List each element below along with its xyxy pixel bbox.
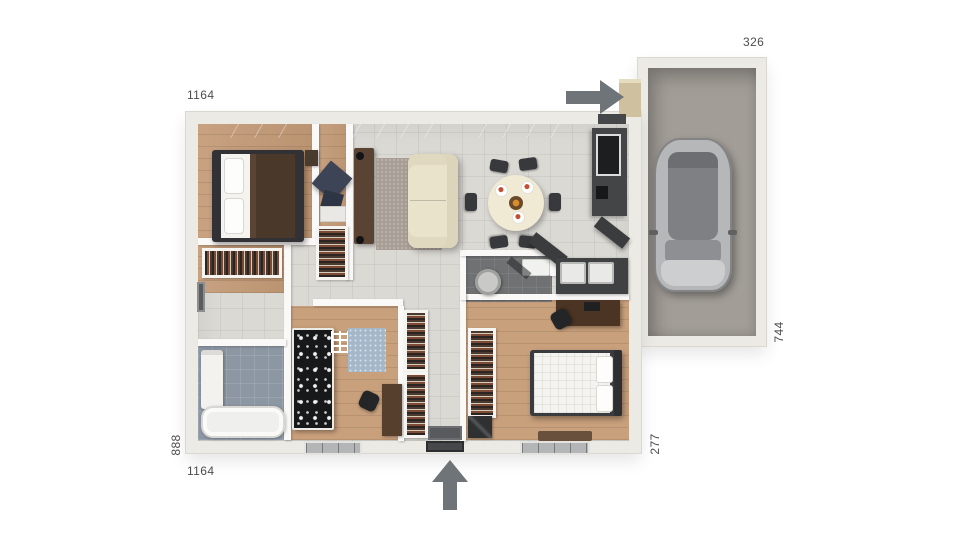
wall-bathroom-top	[198, 339, 286, 346]
dining-chair-6	[465, 193, 477, 211]
entry-mat	[428, 426, 462, 440]
bathtub	[201, 406, 285, 438]
dimension-right-wing: 277	[648, 430, 662, 458]
bed1-blanket	[250, 154, 295, 238]
bed1-pillow-top	[224, 158, 244, 194]
wall-wc-left	[460, 250, 466, 300]
arrow-up-icon	[432, 460, 468, 510]
dimension-garage-width: 326	[743, 35, 764, 49]
window-bedroom2-bottom	[304, 441, 362, 455]
speaker-top	[356, 152, 364, 160]
dimension-house-bottom: 1164	[187, 464, 214, 478]
car	[654, 138, 732, 292]
corridor-wardrobe-upper	[404, 310, 428, 372]
dining-chair-3	[549, 193, 561, 211]
bed1-pillow-bottom	[224, 198, 244, 234]
window-living	[352, 124, 456, 138]
corridor-wardrobe-lower	[404, 372, 428, 438]
wall-bedroom2-top	[313, 299, 403, 306]
car-mirror-left	[649, 230, 658, 235]
hall-window	[197, 282, 205, 312]
car-windshield	[665, 240, 721, 262]
sink-basin-right	[588, 262, 614, 284]
dimension-garage-depth: 744	[772, 318, 786, 346]
kitchen-appliance	[596, 186, 608, 199]
wall-bedroom3-left	[460, 294, 466, 441]
bedroom2-desk	[382, 384, 402, 436]
tv-console	[354, 148, 374, 244]
bath-vanity	[201, 350, 223, 409]
arrow-right-icon	[566, 80, 624, 114]
nook-papers	[320, 206, 346, 222]
window-bedroom1	[230, 124, 310, 138]
floor-plan-canvas: 1164 326 744 888 277 1164	[0, 0, 960, 540]
plate-1	[496, 185, 507, 196]
bed3-headboard	[614, 350, 622, 416]
bedroom3-rug	[538, 431, 592, 441]
dining-chair-2	[518, 157, 537, 171]
dining-chair-5	[489, 235, 508, 249]
car-roof	[668, 152, 718, 240]
dimension-house-left: 888	[169, 431, 183, 459]
bed3-pillow-bottom	[596, 385, 613, 412]
bedroom2-rug	[348, 328, 386, 372]
sofa	[408, 154, 458, 248]
dining-centerpiece	[509, 196, 523, 210]
window-bedroom3-bottom	[520, 441, 590, 455]
bed3-pillow-top	[596, 356, 613, 383]
front-door	[598, 114, 626, 124]
hall-closet	[202, 248, 282, 278]
nook-bookshelf	[316, 226, 348, 280]
wc-shower	[475, 269, 501, 295]
car-hood	[661, 260, 725, 286]
car-mirror-right	[728, 230, 737, 235]
plate-2	[522, 182, 533, 193]
bedroom3-cabinet	[468, 416, 492, 438]
bedroom3-monitor	[584, 302, 600, 311]
main-entry-door	[426, 441, 464, 452]
bed2-patterned	[292, 328, 334, 430]
plate-3	[513, 212, 524, 223]
bed1-nightstand	[305, 150, 318, 166]
dimension-house-top: 1164	[187, 88, 214, 102]
speaker-bottom	[356, 236, 364, 244]
fridge	[596, 134, 621, 176]
window-dining	[478, 124, 570, 138]
sofa-seam	[410, 200, 446, 201]
bedroom3-wardrobe	[468, 328, 496, 418]
sink-basin-left	[560, 262, 586, 284]
